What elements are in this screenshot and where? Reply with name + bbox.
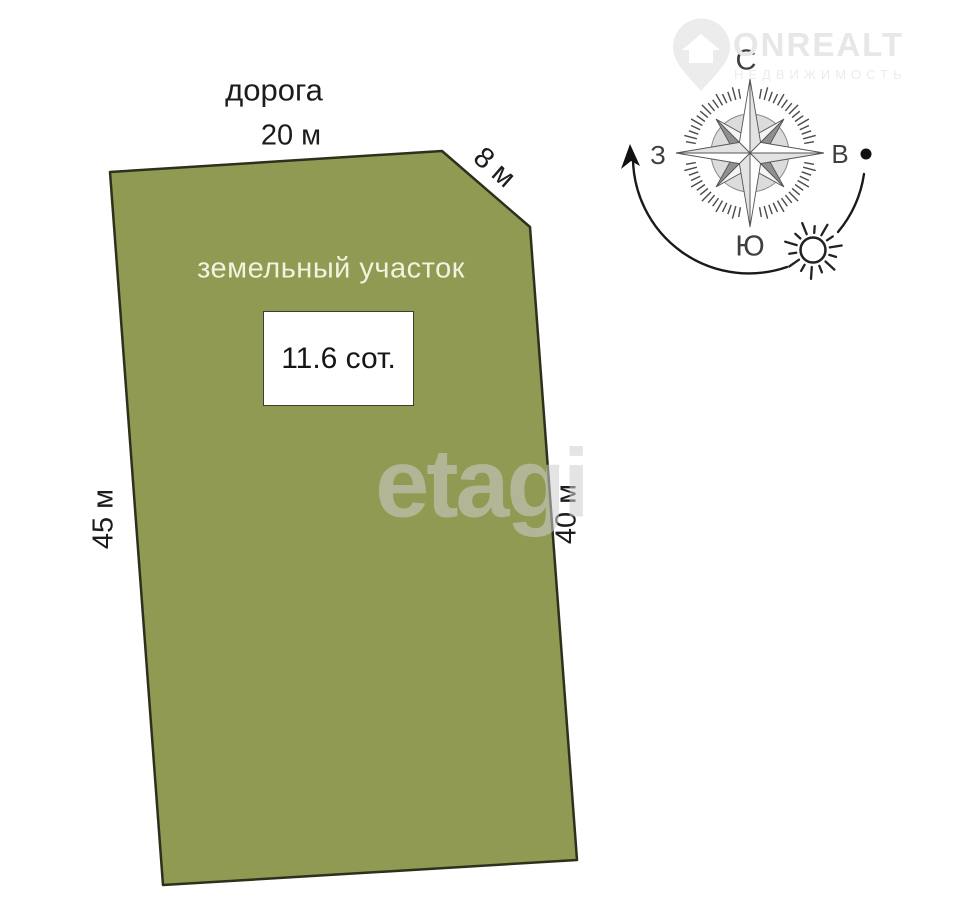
- compass-rose-icon: [676, 79, 824, 227]
- sun-path-arrowhead: [621, 144, 640, 169]
- compass-west-label: З: [650, 142, 666, 168]
- compass-south-label: Ю: [735, 233, 764, 262]
- watermark-etagi: etagi: [375, 435, 586, 532]
- location-pin-icon: [673, 19, 730, 92]
- logo-subtext: НЕДВИЖИМОСТЬ: [734, 68, 907, 81]
- plot-title: земельный участок: [197, 255, 465, 284]
- area-label: 11.6 сот.: [281, 342, 396, 376]
- logo-onrealt: ONREALT: [733, 28, 904, 61]
- sun-icon: [785, 223, 842, 279]
- road-label: дорога: [225, 75, 323, 106]
- area-badge: 11.6 сот.: [263, 311, 414, 406]
- sun-path-start-dot: [861, 149, 872, 160]
- left-dimension-label: 45 м: [90, 489, 119, 549]
- land-plot-scheme: { "page": { "background_color": "#ffffff…: [0, 0, 960, 910]
- top-dimension-label: 20 м: [261, 122, 321, 151]
- compass-east-label: В: [831, 141, 848, 167]
